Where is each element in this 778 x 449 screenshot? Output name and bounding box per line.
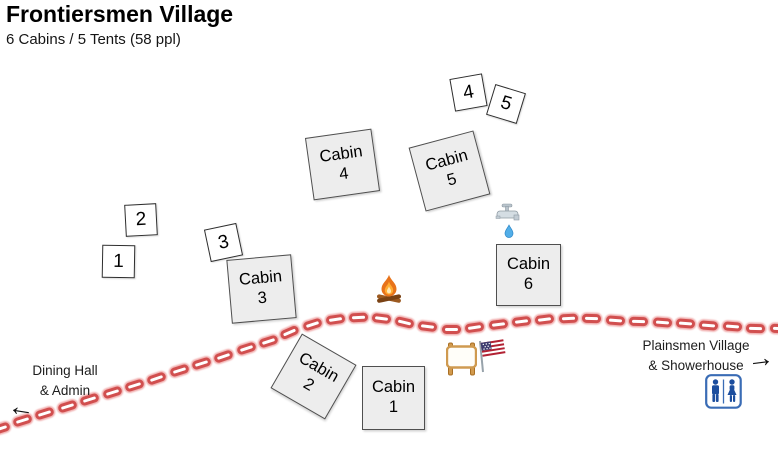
road-dash [169,364,190,378]
road-dash [723,322,743,332]
cabin-1: Cabin1 [362,366,425,430]
cabin-label: Cabin [372,378,415,398]
tent-number: 4 [461,81,475,105]
tent-number: 3 [216,231,231,255]
road-dash [418,321,438,332]
road-dash [511,316,531,327]
cabin-5: Cabin5 [409,130,491,211]
us-flag-icon [476,338,506,374]
road-dash [465,322,485,334]
road-dash [629,316,648,326]
road-dash [372,313,392,324]
road-dash [605,315,625,325]
tent-1: 1 [102,245,136,279]
road-dash [395,316,416,329]
road-dash [34,407,55,421]
road-dash [302,317,323,331]
road-dash [442,325,461,334]
campfire-icon [374,273,404,304]
tent-5: 5 [486,84,526,124]
road-dash [770,324,778,334]
road-dash [146,371,167,386]
road-dash [349,313,368,323]
road-dash [124,379,145,393]
tent-number: 1 [113,250,124,272]
tent-3: 3 [204,223,243,262]
tent-4: 4 [449,73,487,111]
cabin-number: 5 [445,170,459,192]
road-dash [213,349,234,364]
road-dash [535,313,555,324]
tent-number: 2 [135,209,147,232]
blank-signboard-icon [446,340,477,377]
water-tap-icon [492,203,524,245]
road-dash [559,313,578,323]
road-dash [236,341,257,355]
restroom-icon [705,374,742,409]
plainsmen-village-label-line2: & Showerhouse [626,356,766,376]
cabin-number: 4 [338,164,350,185]
road-dash [582,314,601,324]
road-dash [699,320,719,330]
road-dash [652,317,672,327]
cabin-2: Cabin2 [270,333,356,419]
cabin-6: Cabin6 [496,244,561,306]
left-arrow-icon: ← [6,392,37,423]
plainsmen-village-label: Plainsmen Village & Showerhouse [626,336,766,377]
road-dash [279,324,300,340]
cabin-label: Cabin [507,255,550,275]
page-subtitle: 6 Cabins / 5 Tents (58 ppl) [6,31,181,48]
cabin-label: Cabin [295,349,342,388]
road-dash [57,400,78,414]
tent-2: 2 [124,203,158,237]
cabin-number: 2 [300,374,318,396]
road-dash [258,334,279,348]
road-dash [746,323,765,333]
cabin-label: Cabin [238,267,283,290]
cabin-number: 6 [524,275,533,295]
cabin-number: 1 [389,398,398,418]
tent-number: 5 [498,92,515,116]
road-dash [0,421,10,435]
road-dash [488,319,508,330]
right-arrow-icon: → [745,343,775,373]
page-title: Frontiersmen Village [6,1,233,28]
camp-map: Frontiersmen Village 6 Cabins / 5 Tents … [0,0,778,449]
cabin-4: Cabin4 [305,129,380,201]
cabin-number: 3 [257,289,268,310]
road-dash [191,357,212,371]
dining-hall-label-line1: Dining Hall [9,361,121,381]
cabin-3: Cabin3 [226,254,296,323]
road-dash [676,319,696,329]
road-dash [325,314,345,326]
